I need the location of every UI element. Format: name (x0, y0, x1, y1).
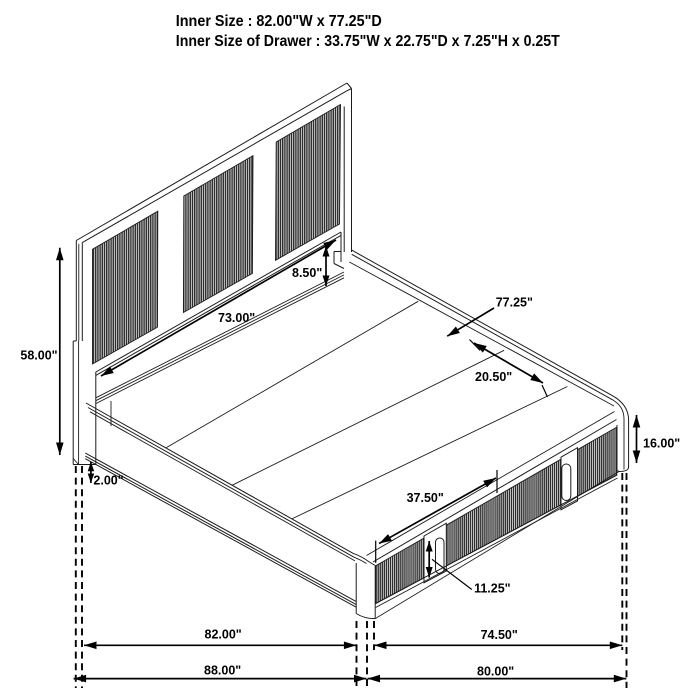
svg-text:8.50": 8.50" (292, 266, 322, 280)
svg-text:73.00": 73.00" (218, 311, 255, 325)
svg-text:77.25": 77.25" (496, 295, 533, 309)
svg-text:Inner Size of Drawer : 33.75"W: Inner Size of Drawer : 33.75"W x 22.75"D… (176, 33, 560, 50)
svg-text:88.00": 88.00" (204, 664, 241, 678)
svg-text:82.00": 82.00" (205, 628, 242, 642)
svg-text:11.25": 11.25" (474, 582, 511, 596)
svg-text:37.50": 37.50" (407, 491, 444, 505)
svg-text:Inner Size : 82.00"W x 77.25"D: Inner Size : 82.00"W x 77.25"D (176, 13, 382, 30)
svg-text:2.00": 2.00" (93, 473, 123, 487)
svg-text:74.50": 74.50" (481, 628, 518, 642)
svg-text:80.00": 80.00" (477, 664, 514, 678)
svg-text:20.50": 20.50" (475, 370, 512, 384)
svg-text:58.00": 58.00" (20, 348, 57, 362)
svg-text:16.00": 16.00" (643, 437, 680, 451)
